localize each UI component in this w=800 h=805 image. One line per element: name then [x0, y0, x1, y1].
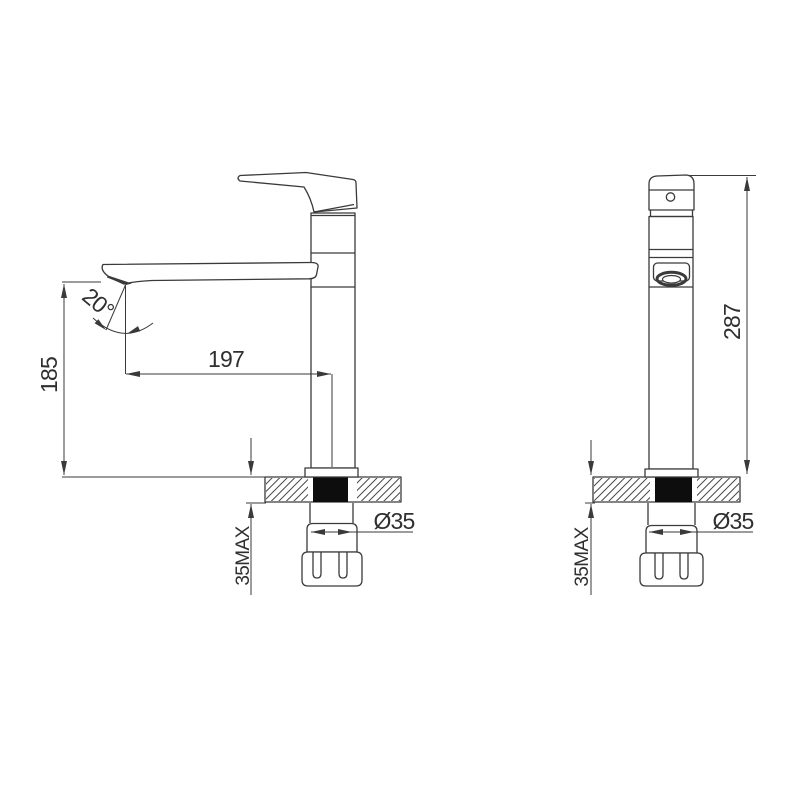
front-view-body: [645, 217, 698, 478]
shank-neck: [310, 503, 353, 523]
mounting-hole: [313, 477, 348, 502]
side-view-spout: [102, 263, 318, 286]
deck-thickness-label: 35MAX: [233, 525, 254, 585]
spray-angle-label: 20°: [77, 283, 119, 324]
dim-overall-height: 287: [690, 176, 756, 475]
dim-deck-thickness-right: 35MAX: [572, 440, 595, 595]
deck-thickness-label: 35MAX: [572, 526, 593, 586]
handle-joint-band: [650, 211, 693, 217]
base-flange: [645, 469, 698, 477]
mounting-nut: [302, 552, 362, 586]
deck-hatch-right: [697, 478, 739, 501]
front-view: 287 35MAX Ø35: [572, 175, 756, 595]
spout-reach-label: 197: [208, 346, 244, 372]
spout-height-label: 185: [36, 357, 62, 393]
shank-dia-label: Ø35: [712, 508, 753, 534]
shank-dia-label: Ø35: [373, 508, 414, 534]
front-view-undermount: [640, 503, 703, 586]
overall-height-label: 287: [719, 304, 745, 340]
side-view-deck: [265, 477, 401, 502]
mounting-hole: [655, 477, 692, 502]
deck-hatch-left: [266, 478, 308, 501]
faucet-technical-drawing: 185 20° 197 35MAX Ø35: [0, 0, 800, 800]
shank-thread: [646, 526, 697, 554]
side-view-undermount: [302, 503, 362, 586]
shank-thread: [307, 524, 357, 553]
side-view: 185 20° 197 35MAX Ø35: [36, 173, 415, 596]
drawing-canvas: 185 20° 197 35MAX Ø35: [0, 0, 800, 800]
body-column: [311, 213, 355, 468]
body-column: [649, 217, 693, 470]
side-view-handle: [238, 173, 357, 213]
dim-spout-height: 185: [36, 282, 265, 477]
shank-neck: [648, 503, 695, 525]
mounting-nut: [640, 553, 703, 586]
front-view-handle: [649, 175, 694, 217]
aerator: [663, 276, 681, 284]
deck-hatch-right: [357, 478, 400, 501]
dim-spray-angle: 20°: [77, 283, 153, 374]
base-flange: [305, 468, 358, 477]
dim-deck-thickness-left: 35MAX: [233, 438, 266, 595]
dim-spout-reach: 197: [126, 346, 332, 467]
front-view-deck: [593, 477, 740, 502]
deck-hatch-left: [594, 478, 650, 501]
